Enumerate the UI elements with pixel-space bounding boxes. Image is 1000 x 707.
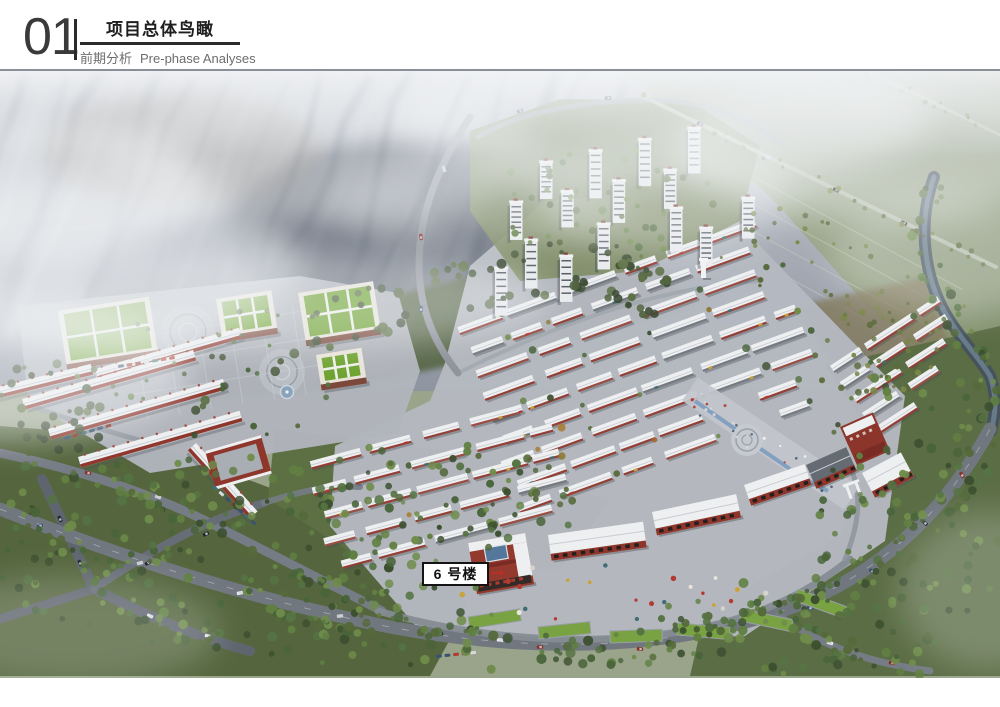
aerial-rendering: 6 号楼 <box>0 71 1000 678</box>
annotation-arrowhead-icon <box>500 570 505 576</box>
page-title: 项目总体鸟瞰 <box>80 21 240 40</box>
title-underline <box>80 42 240 45</box>
building-6-label: 6 号楼 <box>434 564 478 584</box>
building-6-annotation: 6 号楼 <box>422 562 489 586</box>
title-block: 项目总体鸟瞰 前期分析Pre-phase Analyses <box>80 21 240 67</box>
presentation-page: 01 项目总体鸟瞰 前期分析Pre-phase Analyses <box>0 0 1000 707</box>
annotation-arrow-icon <box>491 572 500 574</box>
section-number: 01 <box>23 14 79 62</box>
page-subtitle: 前期分析Pre-phase Analyses <box>80 48 240 67</box>
subtitle-zh: 前期分析 <box>80 51 132 66</box>
header-divider <box>74 19 77 60</box>
subtitle-en: Pre-phase Analyses <box>140 51 256 66</box>
aerial-view-svg <box>0 71 1000 678</box>
